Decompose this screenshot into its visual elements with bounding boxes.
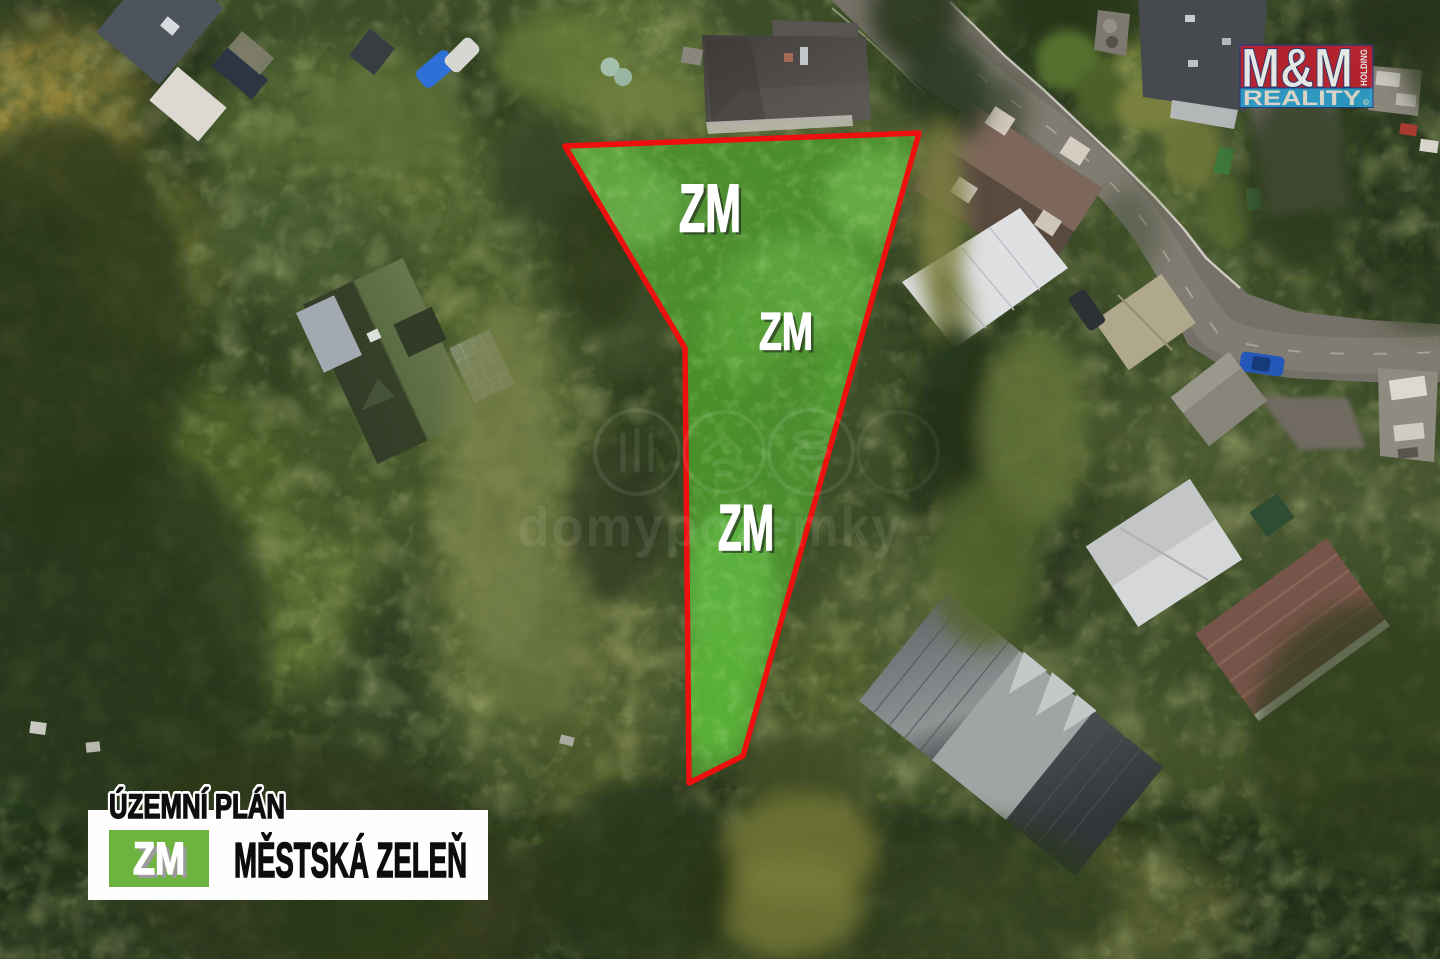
- svg-text:MĚSTSKÁ ZELEŇ: MĚSTSKÁ ZELEŇ: [234, 833, 467, 888]
- svg-text:REALITY: REALITY: [1243, 87, 1361, 110]
- svg-text:ZM: ZM: [718, 491, 774, 564]
- svg-text:domypozemky: domypozemky: [518, 495, 903, 558]
- svg-text:ÚZEMNÍ PLÁN: ÚZEMNÍ PLÁN: [109, 788, 285, 826]
- svg-text:ZM: ZM: [759, 303, 813, 362]
- svg-text:ZM: ZM: [133, 833, 185, 884]
- svg-text:HOLDING: HOLDING: [1359, 49, 1369, 86]
- svg-text:ZM: ZM: [679, 171, 741, 247]
